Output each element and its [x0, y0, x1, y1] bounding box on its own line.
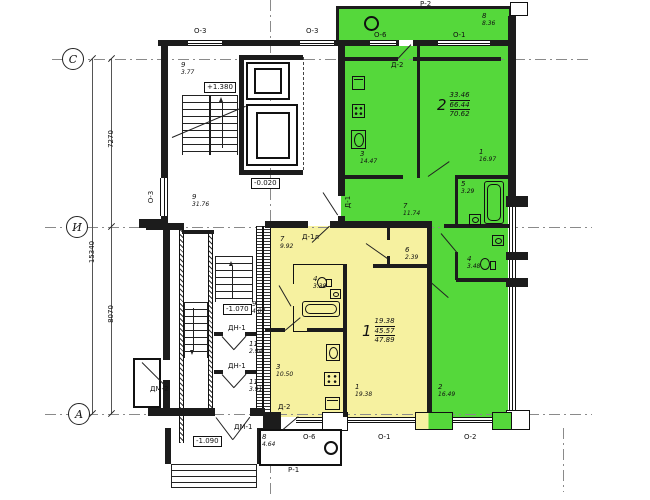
room-number: 1: [479, 149, 496, 156]
wall: [396, 40, 399, 46]
wall-pier: [415, 412, 453, 430]
apartment-1-summary: 1 19.38 45.57 47.89: [362, 317, 395, 345]
room-area: 4.07: [252, 308, 265, 315]
room-number: 3: [360, 151, 377, 158]
room-number: 8: [262, 434, 275, 441]
window: [296, 417, 322, 423]
room-label: 931.76: [192, 194, 209, 208]
room-area: 19.38: [355, 391, 372, 398]
room-number: 11: [249, 379, 262, 386]
door-swing: [222, 374, 235, 388]
room-area: 31.76: [192, 201, 209, 208]
mark-o1: О-1: [378, 433, 391, 441]
balcony-circle-icon: [324, 441, 338, 455]
window: [453, 417, 492, 423]
room-label: 119.38: [355, 384, 372, 398]
room-label: 53.29: [461, 181, 474, 195]
bathtub-icon: [302, 301, 340, 317]
room-area: 16.97: [479, 156, 496, 163]
room-number: 7: [280, 236, 293, 243]
dim-line-inner: [111, 59, 112, 414]
entrance-steps: [171, 464, 257, 488]
room-label: 79.92: [280, 236, 293, 250]
arrow-up-icon: [229, 261, 233, 266]
door-opening: [163, 360, 170, 380]
stairs-up-arrow: [222, 102, 223, 148]
room-label: 88.36: [482, 13, 495, 27]
mark-dn1: ДН-1: [228, 362, 246, 370]
dim-lower: 8070: [107, 301, 115, 327]
fridge-icon: [325, 397, 340, 410]
mark-dm1: ДМ-1: [234, 423, 253, 431]
wall: [417, 46, 420, 178]
fridge-icon: [352, 76, 365, 90]
door-opening: [291, 284, 296, 306]
room-area: 3.29: [461, 188, 474, 195]
room-area: 9.92: [280, 243, 293, 250]
wall: [250, 408, 265, 416]
room-label: 84.64: [262, 434, 275, 448]
wall: [508, 16, 516, 196]
wall: [165, 428, 171, 464]
door-swing: [323, 192, 339, 215]
sink-icon: [469, 214, 481, 225]
window: [509, 260, 516, 278]
room-label: 93.77: [181, 62, 194, 76]
room-number: 4: [313, 276, 326, 283]
wall: [148, 408, 215, 416]
window: [160, 178, 168, 216]
room-label: 711.74: [403, 203, 420, 217]
mark-o6: О-6: [303, 433, 316, 441]
wall: [455, 179, 458, 224]
room-area: 10.50: [276, 371, 293, 378]
elevation-mark: -1.070: [223, 304, 252, 315]
elevator-large-cab: [256, 112, 290, 159]
wall: [245, 332, 256, 336]
room-area: 3.91: [249, 386, 262, 393]
stove-icon: [324, 372, 340, 386]
room-area: 4.64: [262, 441, 275, 448]
elevator-shaft-wall: [239, 55, 244, 175]
room-area: 2.94: [249, 348, 262, 355]
wall: [427, 221, 432, 417]
wall: [343, 264, 347, 417]
room-area: 3.38: [313, 283, 326, 290]
mark-p1: Р-1: [288, 466, 299, 474]
room-number: 4: [467, 256, 480, 263]
door-swing: [234, 336, 247, 350]
room-label: 116.97: [479, 149, 496, 163]
window: [438, 40, 490, 46]
stairs-down-arrow: [193, 308, 194, 350]
room-number: 5: [461, 181, 474, 188]
balcony-rail: [336, 6, 339, 42]
elevator-shaft-wall: [239, 170, 303, 175]
apartment-2-summary: 2 33.46 66.44 70.62: [437, 91, 470, 119]
mark-d2: Д-2: [391, 61, 403, 69]
wall-pier: [510, 2, 528, 16]
balcony-circle-icon: [364, 16, 379, 31]
wall: [245, 370, 256, 374]
mark-o3: О-3: [147, 184, 155, 210]
mark-d1: Д-1: [344, 189, 352, 215]
elevator-shaft-wall: [239, 55, 303, 60]
elevation-mark: -0.020: [251, 178, 280, 189]
mark-o1: О-1: [453, 31, 466, 39]
room-label: 310.50: [276, 364, 293, 378]
room-number: 7: [403, 203, 420, 210]
room-label: 43.48: [467, 256, 480, 270]
door-swing: [283, 416, 299, 430]
room-area: 3.77: [181, 69, 194, 76]
room-number: 9: [181, 62, 194, 69]
room-number: 3: [276, 364, 293, 371]
arrow-down-icon: [190, 350, 194, 355]
elevation-mark: +1.380: [204, 82, 236, 93]
stove-icon: [352, 104, 365, 118]
room-number: 9: [252, 301, 265, 308]
usable-area: 45.57: [375, 327, 395, 337]
mark-o6: О-6: [374, 31, 387, 39]
room-label: 113.91: [249, 379, 262, 393]
room-area: 11.74: [403, 210, 420, 217]
room-label: 43.38: [313, 276, 326, 290]
room-area: 2.39: [405, 254, 418, 261]
stairs-divider: [209, 95, 211, 155]
apartment-areas: 19.38 45.57 47.89: [375, 317, 395, 345]
wall: [338, 46, 345, 196]
mark-dm2: ДМ-2: [150, 385, 169, 393]
axis-line-vertical-right: [563, 428, 564, 492]
sink-icon: [351, 130, 366, 149]
wall: [455, 252, 458, 280]
room-label: 94.07: [252, 301, 265, 315]
room-number: 1: [355, 384, 372, 391]
window: [300, 40, 334, 46]
wall: [330, 221, 430, 228]
wall: [263, 412, 281, 430]
elevation-mark: -1.090: [193, 436, 222, 447]
room-number: 6: [405, 247, 418, 254]
mark-d1l: Д-1л: [302, 233, 319, 241]
wall: [456, 278, 510, 282]
stairs-mid-arrow: [232, 266, 233, 298]
living-area: 33.46: [450, 91, 470, 101]
living-area: 19.38: [375, 317, 395, 327]
sink-icon: [330, 289, 341, 299]
mark-o2: О-2: [464, 433, 477, 441]
axis-bubble-i: И: [66, 216, 88, 238]
bathtub-icon: [484, 181, 504, 224]
wall-pier: [492, 412, 512, 430]
mark-dn1: ДН-1: [228, 324, 246, 332]
mark-d2: Д-2: [278, 403, 290, 411]
room-label: 314.47: [360, 151, 377, 165]
toilet-tank-icon: [326, 279, 332, 287]
room-number: 8: [482, 13, 495, 20]
wall: [182, 230, 214, 234]
wall: [161, 40, 168, 180]
total-area: 70.62: [450, 110, 470, 119]
room-area: 16.49: [438, 391, 455, 398]
stairs-mid-flight: [215, 256, 253, 302]
wall: [265, 328, 285, 332]
mark-o3: О-3: [194, 27, 207, 35]
room-label: 112.94: [249, 341, 262, 355]
window: [509, 287, 516, 410]
shaft-wall-right: [208, 230, 213, 415]
wall: [455, 175, 510, 179]
door-swing: [234, 374, 247, 388]
wall: [345, 175, 403, 179]
room-label: 216.49: [438, 384, 455, 398]
wall: [265, 221, 308, 228]
wall: [506, 252, 528, 260]
wall: [163, 228, 170, 410]
stairs-lower-flight: [184, 302, 208, 358]
wall: [506, 196, 528, 207]
floor-plan: 15340 7270 8070 С И А: [0, 0, 650, 500]
room-number: 9: [192, 194, 209, 201]
room-area: 14.47: [360, 158, 377, 165]
room-area: 8.36: [482, 20, 495, 27]
elevator-shaft-front: [303, 57, 304, 170]
entry-porch: [133, 358, 161, 408]
arrow-up-icon: [219, 97, 223, 102]
toilet-tank-icon: [490, 261, 496, 270]
window: [188, 40, 222, 46]
usable-area: 66.44: [450, 101, 470, 111]
apartment1-left-wall: [263, 226, 271, 412]
apartment-number: 1: [362, 322, 372, 340]
apartment2-main-fill: [341, 46, 508, 226]
elevator-small-cab: [254, 68, 282, 94]
wall: [413, 57, 501, 61]
window: [348, 417, 415, 423]
wall: [307, 328, 345, 332]
toilet-icon: [480, 258, 490, 270]
wall: [506, 278, 528, 287]
room-label: 62.39: [405, 247, 418, 261]
sink-icon: [326, 344, 340, 361]
axis-bubble-c: С: [62, 48, 84, 70]
room-area: 3.48: [467, 263, 480, 270]
apartment-areas: 33.46 66.44 70.62: [450, 91, 470, 119]
total-area: 47.89: [375, 336, 395, 345]
mark-p2: Р-2: [420, 0, 431, 8]
window: [370, 40, 396, 46]
wall: [373, 264, 430, 268]
axis-bubble-a: А: [68, 403, 90, 425]
dim-total: 15340: [88, 239, 96, 265]
window: [509, 207, 516, 252]
apartment-number: 2: [437, 96, 447, 114]
mark-o3: О-3: [306, 27, 319, 35]
wall: [222, 40, 302, 46]
room-number: 11: [249, 341, 262, 348]
room-number: 2: [438, 384, 455, 391]
sink-icon: [492, 235, 504, 246]
dim-upper: 7270: [107, 126, 115, 152]
wall: [387, 226, 390, 240]
dim-line-outer: [92, 59, 93, 414]
door-swing: [222, 336, 235, 350]
